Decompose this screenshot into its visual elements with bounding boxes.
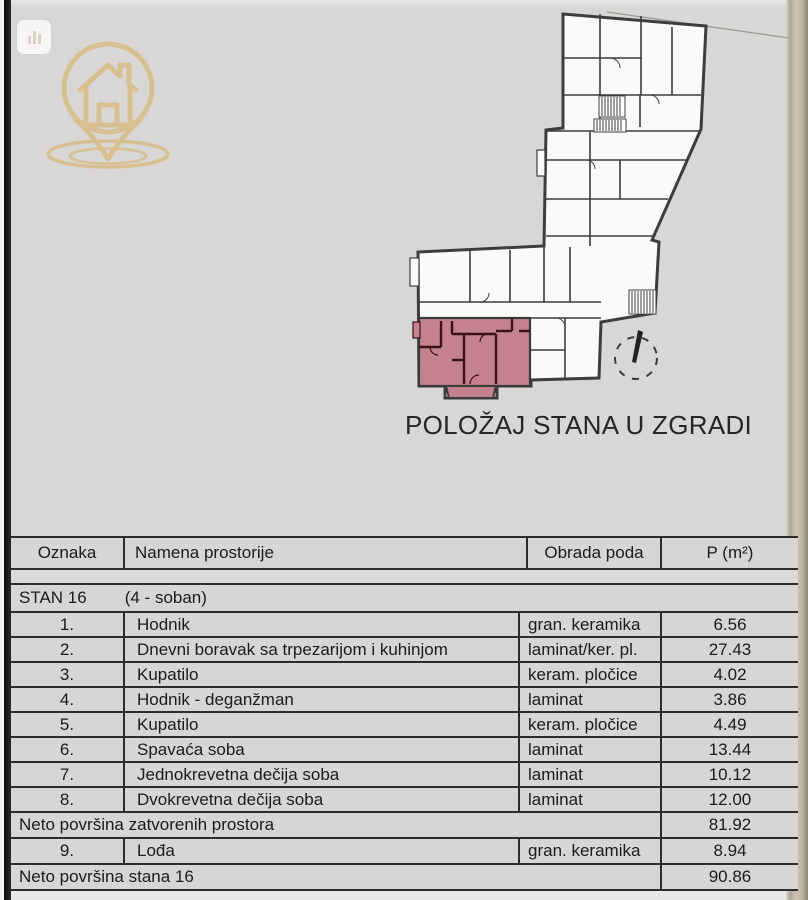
loggia-row: 9. Lođa gran. keramika 8.94 [11, 839, 798, 865]
room-area: 10.12 [660, 763, 798, 786]
table-row: 2. Dnevni boravak sa trpezarijom i kuhin… [11, 638, 798, 663]
north-arrow-compass [615, 330, 657, 379]
room-area: 13.44 [660, 738, 798, 761]
apartment-name: STAN 16 [11, 588, 87, 608]
table-row: 8. Dvokrevetna dečija soba laminat 12.00 [11, 788, 798, 813]
areas-table: Oznaka Namena prostorije Obrada poda P (… [11, 536, 798, 891]
spacer-row [11, 570, 798, 585]
location-pin-house-logo [38, 32, 178, 184]
room-area: 4.49 [660, 713, 798, 736]
room-floor: laminat [518, 738, 660, 761]
room-floor: keram. pločice [518, 713, 660, 736]
room-area: 6.56 [660, 613, 798, 636]
room-floor: gran. keramika [518, 613, 660, 636]
table-row: 7. Jednokrevetna dečija soba laminat 10.… [11, 763, 798, 788]
room-area: 12.00 [660, 788, 798, 811]
room-floor: laminat [518, 788, 660, 811]
room-floor: laminat/ker. pl. [518, 638, 660, 661]
room-area: 27.43 [660, 638, 798, 661]
room-name: Hodnik [123, 613, 518, 636]
room-name: Dvokrevetna dečija soba [123, 788, 518, 811]
room-floor: gran. keramika [518, 839, 660, 863]
header-oznaka: Oznaka [11, 543, 123, 563]
header-obrada: Obrada poda [526, 538, 660, 568]
apartment-group-row: STAN 16 (4 - soban) [11, 585, 798, 613]
room-number: 7. [11, 765, 123, 785]
room-number: 6. [11, 740, 123, 760]
compass-needle [632, 330, 643, 363]
room-number: 1. [11, 615, 123, 635]
room-name: Kupatilo [123, 713, 518, 736]
building-floor-plan [405, 5, 805, 405]
document-page: POLOŽAJ STANA U ZGRADI Oznaka Namena pro… [0, 0, 808, 900]
header-povrsina: P (m²) [660, 538, 798, 568]
room-area: 4.02 [660, 663, 798, 686]
room-name: Spavaća soba [123, 738, 518, 761]
table-row: 5. Kupatilo keram. pločice 4.49 [11, 713, 798, 738]
table-row: 6. Spavaća soba laminat 13.44 [11, 738, 798, 763]
room-name: Lođa [123, 839, 518, 863]
room-number: 9. [11, 841, 123, 861]
loggia [446, 386, 496, 398]
apartment-balcony-tick [413, 322, 420, 338]
left-border-bar [4, 0, 11, 900]
room-number: 8. [11, 790, 123, 810]
subtotal-row: Neto površina zatvorenih prostora 81.92 [11, 813, 798, 839]
room-name: Hodnik - deganžman [123, 688, 518, 711]
table-row: 1. Hodnik gran. keramika 6.56 [11, 613, 798, 638]
room-number: 3. [11, 665, 123, 685]
room-name: Jednokrevetna dečija soba [123, 763, 518, 786]
header-namena: Namena prostorije [123, 538, 526, 568]
total-row: Neto površina stana 16 90.86 [11, 865, 798, 891]
room-number: 5. [11, 715, 123, 735]
room-area: 3.86 [660, 688, 798, 711]
highlighted-apartment [413, 318, 530, 398]
balcony-tick [537, 150, 545, 176]
table-header-row: Oznaka Namena prostorije Obrada poda P (… [11, 538, 798, 570]
room-number: 2. [11, 640, 123, 660]
room-floor: laminat [518, 688, 660, 711]
room-floor: keram. pločice [518, 663, 660, 686]
subtotal-label: Neto površina zatvorenih prostora [11, 813, 660, 837]
total-label: Neto površina stana 16 [11, 865, 660, 889]
house-icon [80, 65, 136, 125]
table-row: 4. Hodnik - deganžman laminat 3.86 [11, 688, 798, 713]
subtotal-area: 81.92 [660, 813, 798, 837]
room-area: 8.94 [660, 839, 798, 863]
plan-caption: POLOŽAJ STANA U ZGRADI [405, 410, 735, 441]
apartment-type: (4 - soban) [125, 588, 207, 608]
room-floor: laminat [518, 763, 660, 786]
room-number: 4. [11, 690, 123, 710]
room-name: Kupatilo [123, 663, 518, 686]
room-name: Dnevni boravak sa trpezarijom i kuhinjom [123, 638, 518, 661]
balcony-tick [410, 258, 419, 286]
total-area: 90.86 [660, 865, 798, 889]
table-row: 3. Kupatilo keram. pločice 4.02 [11, 663, 798, 688]
